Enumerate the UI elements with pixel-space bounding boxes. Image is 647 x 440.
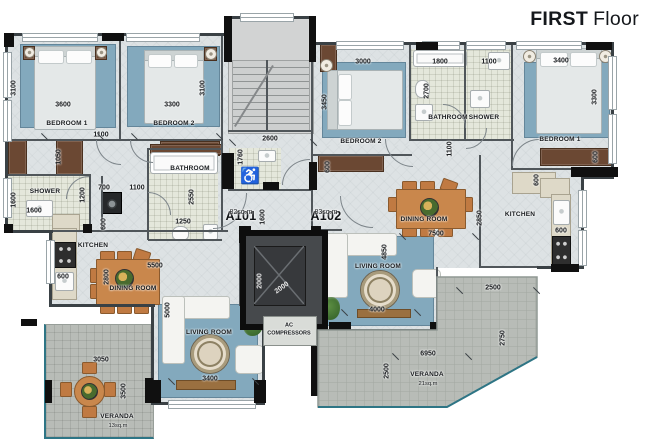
headboard bbox=[327, 70, 338, 130]
window bbox=[3, 100, 12, 142]
stove bbox=[54, 242, 76, 268]
wall bbox=[409, 44, 411, 141]
dimension-label: 3450 bbox=[322, 94, 329, 110]
window bbox=[240, 13, 294, 22]
wall bbox=[4, 33, 14, 47]
dimension-label: 1760 bbox=[238, 149, 245, 165]
dimension-label: 1100 bbox=[481, 59, 496, 66]
wall bbox=[551, 264, 579, 272]
dimension-label: 2500 bbox=[485, 285, 501, 292]
dimension-label: 4000 bbox=[369, 307, 385, 314]
room-label: BATHROOM bbox=[170, 166, 209, 173]
dimension-label: 2600 bbox=[262, 136, 278, 143]
pillow bbox=[38, 50, 64, 64]
pillow bbox=[148, 54, 172, 68]
floor-plan: ♿ 31003600110010503300310016001600120070… bbox=[0, 0, 647, 440]
wall bbox=[311, 44, 313, 232]
dimension-label: 1250 bbox=[175, 219, 191, 226]
dimension-label: 600 bbox=[57, 274, 69, 281]
wall bbox=[6, 174, 90, 176]
sink bbox=[470, 90, 490, 108]
dimension-label: 1600 bbox=[11, 192, 18, 208]
ac-compressors-label: COMPRESSORS bbox=[267, 331, 310, 337]
room-area-label: 21sq.m bbox=[418, 382, 437, 388]
wall bbox=[228, 130, 312, 132]
dimension-label: 600 bbox=[555, 228, 567, 235]
pillow bbox=[338, 100, 352, 126]
title-regular: Floor bbox=[593, 8, 639, 30]
wheelchair-icon: ♿ bbox=[240, 166, 260, 186]
stove bbox=[552, 236, 571, 265]
wall bbox=[102, 33, 124, 41]
wardrobe bbox=[540, 148, 614, 166]
dimension-label: 600 bbox=[101, 218, 108, 230]
wall bbox=[4, 224, 13, 233]
room-label: LIVING ROOM bbox=[355, 264, 401, 271]
chair bbox=[60, 382, 72, 397]
chair bbox=[82, 362, 97, 374]
dimension-label: 3300 bbox=[164, 102, 180, 109]
dimension-label: 2000 bbox=[257, 273, 264, 289]
dimension-label: 1600 bbox=[260, 209, 267, 225]
wardrobe bbox=[8, 140, 27, 175]
dimension-label: 3300 bbox=[592, 89, 599, 105]
dimension-label: 4850 bbox=[382, 244, 389, 260]
window bbox=[608, 114, 617, 164]
dimension-label: 3400 bbox=[553, 58, 569, 65]
staircase bbox=[232, 60, 310, 132]
dimension-label: 1600 bbox=[26, 208, 42, 215]
wall bbox=[511, 44, 513, 170]
wall bbox=[571, 167, 618, 177]
room-label: BATHROOM bbox=[428, 115, 467, 122]
pillow bbox=[570, 52, 597, 67]
window bbox=[46, 240, 55, 284]
wall bbox=[263, 182, 279, 190]
wall bbox=[222, 153, 234, 189]
title-bold: FIRST bbox=[530, 8, 588, 30]
window bbox=[336, 41, 404, 50]
room-area-label: 13sq.m bbox=[108, 424, 127, 430]
lamp bbox=[205, 48, 217, 60]
wall bbox=[224, 16, 232, 62]
window bbox=[578, 230, 587, 266]
wall bbox=[45, 380, 52, 403]
room-label: BEDROOM 1 bbox=[46, 121, 87, 128]
dimension-label: 2850 bbox=[477, 210, 484, 226]
room-label: BEDROOM 1 bbox=[539, 137, 580, 144]
dimension-label: 1050 bbox=[56, 149, 63, 165]
dimension-label: 2750 bbox=[500, 330, 507, 346]
room-label: DINING ROOM bbox=[110, 286, 157, 293]
dimension-label: 3100 bbox=[200, 80, 207, 96]
pillow bbox=[66, 50, 92, 64]
wall bbox=[119, 40, 121, 140]
wall bbox=[586, 42, 612, 50]
ac-compressors-label: AC bbox=[285, 323, 293, 329]
wall bbox=[145, 378, 153, 403]
wall bbox=[309, 162, 317, 190]
chair bbox=[82, 406, 97, 418]
dimension-label: 2550 bbox=[189, 189, 196, 205]
wall bbox=[416, 42, 438, 50]
dimension-label: 600 bbox=[325, 161, 332, 173]
washing-machine bbox=[102, 192, 122, 214]
room-label: KITCHEN bbox=[505, 212, 535, 219]
dimension-label: 1100 bbox=[129, 185, 144, 192]
room-label: SHOWER bbox=[469, 115, 499, 122]
sink bbox=[258, 150, 276, 162]
window bbox=[578, 190, 587, 228]
room-label: BEDROOM 2 bbox=[340, 139, 381, 146]
room-label: SHOWER bbox=[30, 189, 60, 196]
sink bbox=[553, 200, 570, 225]
outer-wall bbox=[49, 304, 155, 307]
dimension-label: 2700 bbox=[424, 83, 431, 99]
lamp bbox=[320, 59, 333, 72]
centerpiece bbox=[420, 198, 439, 217]
unit-area: 82sq.m bbox=[230, 209, 253, 216]
wall bbox=[148, 239, 222, 241]
window bbox=[608, 56, 617, 110]
dimension-label: 1200 bbox=[80, 187, 87, 203]
dimension-label: 3000 bbox=[355, 59, 371, 66]
chair bbox=[104, 382, 116, 397]
dimension-label: 5000 bbox=[165, 302, 172, 318]
dimension-label: 700 bbox=[98, 185, 110, 192]
dimension-label: 2800 bbox=[104, 269, 111, 285]
veranda-a102 bbox=[310, 265, 550, 415]
dimension-label: 3400 bbox=[202, 376, 218, 383]
window bbox=[466, 41, 506, 50]
window bbox=[126, 33, 200, 42]
dimension-label: 1800 bbox=[432, 59, 448, 66]
room-label: LIVING ROOM bbox=[186, 330, 232, 337]
dimension-label: 600 bbox=[593, 151, 600, 163]
dimension-label: 5500 bbox=[147, 263, 163, 270]
window bbox=[168, 400, 256, 409]
room-label: VERANDA bbox=[100, 414, 134, 421]
round-rug bbox=[190, 334, 230, 374]
pillow bbox=[174, 54, 198, 68]
room-label: VERANDA bbox=[410, 372, 444, 379]
page-title: FIRSTFloor bbox=[530, 8, 639, 31]
wall bbox=[83, 224, 92, 233]
stair-landing bbox=[232, 20, 308, 60]
dimension-label: 3050 bbox=[93, 357, 109, 364]
dimension-label: 3100 bbox=[11, 80, 18, 96]
dimension-label: 7500 bbox=[428, 231, 444, 238]
dimension-label: 600 bbox=[534, 174, 541, 186]
lamp bbox=[523, 50, 536, 63]
wall bbox=[309, 16, 316, 62]
dimension-label: 6950 bbox=[420, 351, 436, 358]
lamp bbox=[24, 47, 35, 58]
room-label: KITCHEN bbox=[78, 243, 108, 250]
dimension-label: 2500 bbox=[384, 363, 391, 379]
room-label: BEDROOM 2 bbox=[153, 121, 194, 128]
centerpiece bbox=[81, 383, 98, 400]
wall bbox=[21, 319, 37, 326]
pillow bbox=[338, 74, 352, 100]
dimension-label: 1100 bbox=[447, 141, 454, 156]
lamp bbox=[96, 47, 107, 58]
dimension-label: 3500 bbox=[121, 383, 128, 399]
armchair bbox=[235, 345, 264, 374]
window bbox=[516, 41, 582, 50]
room-label: DINING ROOM bbox=[401, 217, 448, 224]
unit-area: 83sq.m bbox=[315, 209, 338, 216]
wall bbox=[148, 148, 222, 150]
wall bbox=[410, 139, 514, 141]
window bbox=[22, 33, 98, 42]
dimension-label: 3600 bbox=[55, 102, 71, 109]
